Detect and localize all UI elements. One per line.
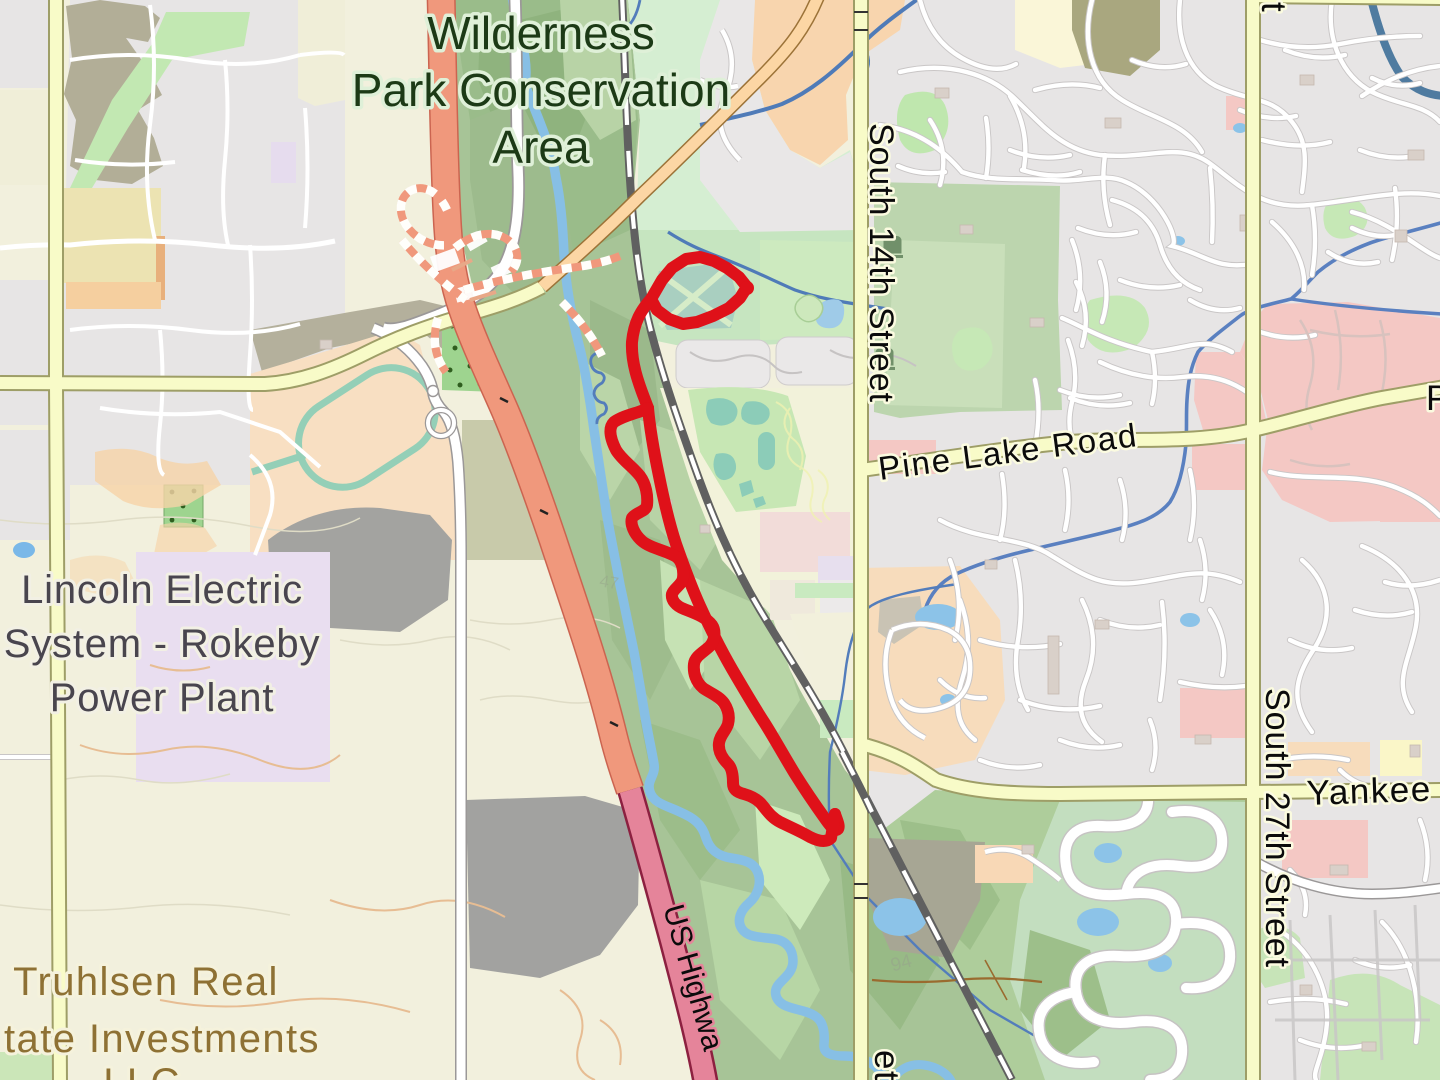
- svg-text:Truhlsen Real: Truhlsen Real: [13, 960, 279, 1004]
- svg-text:South 27th Street: South 27th Street: [1258, 688, 1296, 968]
- svg-text:Power Plant: Power Plant: [50, 676, 274, 720]
- svg-text:et: et: [867, 1050, 906, 1080]
- svg-text:LLC: LLC: [103, 1061, 181, 1080]
- svg-text:tate Investments: tate Investments: [4, 1017, 320, 1061]
- svg-text:Area: Area: [492, 121, 590, 173]
- svg-text:t: t: [1254, 2, 1293, 13]
- svg-text:System - Rokeby: System - Rokeby: [4, 622, 321, 666]
- svg-text:Lincoln Electric: Lincoln Electric: [21, 568, 303, 612]
- svg-text:47: 47: [598, 571, 620, 593]
- svg-text:Wilderness: Wilderness: [427, 7, 655, 59]
- svg-text:Park Conservation: Park Conservation: [352, 64, 730, 116]
- svg-text:South 14th Street: South 14th Street: [862, 123, 900, 403]
- svg-text:Yankee H: Yankee H: [1306, 768, 1440, 813]
- svg-text:P: P: [1426, 379, 1440, 418]
